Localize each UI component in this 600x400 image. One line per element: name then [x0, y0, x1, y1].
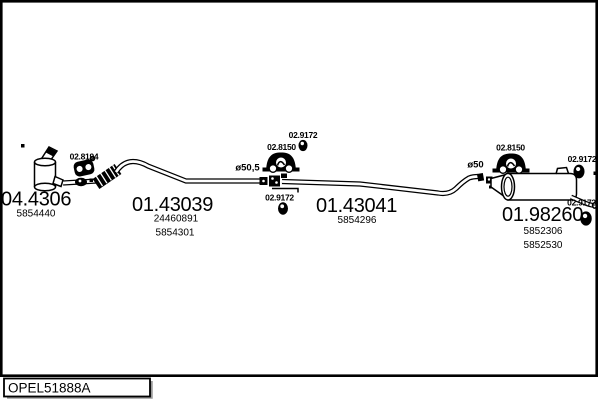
- pipe-diameter-label-mid: ø50,5: [235, 163, 260, 174]
- rear-top-ring-icon: [574, 165, 585, 179]
- exhaust-parts-diagram: 04.4306 5854440 01.43039 24460891 585430…: [0, 0, 600, 400]
- diagram-canvas: 04.4306 5854440 01.43039 24460891 585430…: [0, 0, 600, 400]
- mid-top-ring-code-label[interactable]: 02.9172: [289, 130, 318, 140]
- mid-top-ring-icon: [299, 140, 308, 151]
- front-pipe-oem-number-1: 24460891: [154, 214, 199, 225]
- front-pipe-oem-number-2: 5854301: [156, 228, 195, 239]
- center-pipe-oem-number: 5854296: [338, 215, 377, 226]
- catalyst-oem-number: 5854440: [17, 209, 56, 220]
- rear-muffler-oem-number-1: 5852306: [524, 226, 563, 237]
- mid-bottom-ring-icon: [278, 202, 288, 214]
- marker-square-icon: [21, 144, 25, 148]
- catalyst-code-label[interactable]: 04.4306: [1, 189, 71, 211]
- front-hanger-code-label[interactable]: 02.8194: [70, 152, 99, 162]
- marker-square-icon: [594, 172, 598, 176]
- mid-bottom-ring-code-label[interactable]: 02.9172: [265, 193, 294, 203]
- pipe-diameter-label-rear: ø50: [467, 160, 483, 171]
- rear-top-ring-code-label[interactable]: 02.9172: [568, 154, 597, 164]
- rear-bottom-ring-code-label[interactable]: 02.9172: [567, 198, 596, 208]
- mid-hanger-code-label[interactable]: 02.8150: [267, 142, 296, 152]
- diagram-code-text: OPEL51888A: [8, 381, 91, 396]
- diagram-code-box: OPEL51888A: [4, 379, 152, 398]
- rear-hanger-code-label[interactable]: 02.8150: [496, 143, 525, 153]
- rear-muffler-oem-number-2: 5852530: [524, 240, 563, 251]
- center-pipe-code-label[interactable]: 01.43041: [316, 195, 397, 217]
